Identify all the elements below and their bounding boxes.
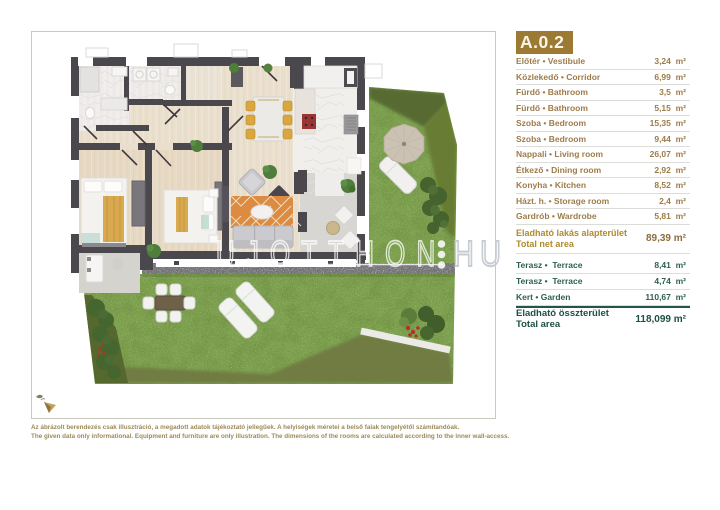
svg-text:HU: HU <box>453 233 507 274</box>
svg-text:UJOTTHON: UJOTTHON <box>216 234 446 274</box>
